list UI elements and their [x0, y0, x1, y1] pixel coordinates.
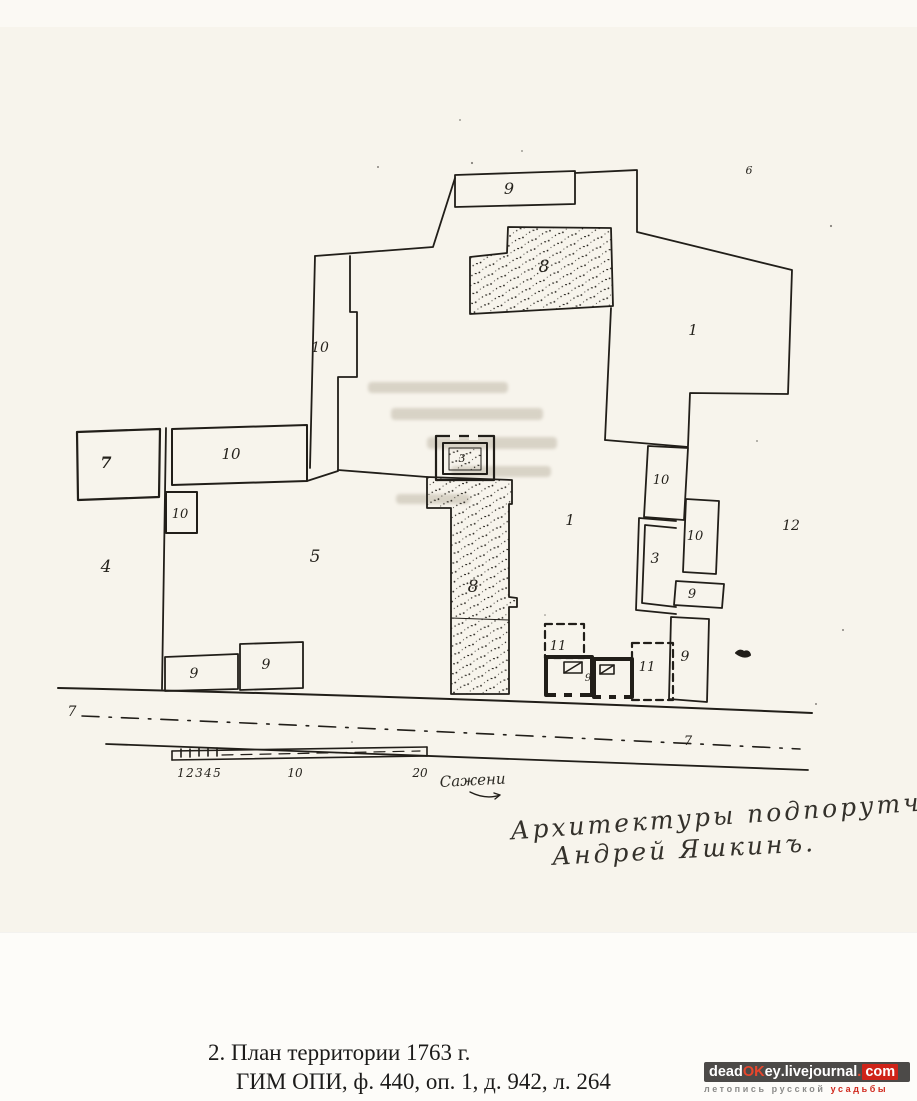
stove-hatched-right	[600, 665, 614, 674]
region-label-10: 10	[687, 529, 704, 544]
region-label-7: 7	[100, 453, 111, 472]
region-label-7: 7	[68, 704, 77, 720]
scale-tick-3: 3	[195, 766, 203, 780]
region-label-6: 6	[746, 164, 753, 177]
scale-arrow	[470, 792, 500, 799]
building-7-left	[77, 429, 160, 500]
figure-caption-line1: 2. План территории 1763 г.	[208, 1040, 470, 1066]
scale-tick-2: 2	[185, 766, 194, 780]
region-label-11: 11	[639, 660, 656, 675]
figure-caption-line2: ГИМ ОПИ, ф. 440, оп. 1, д. 942, л. 264	[236, 1069, 611, 1095]
region-label-9: 9	[190, 666, 199, 682]
watermark-site-dot: .	[857, 1064, 861, 1080]
region-label-11: 11	[550, 639, 567, 654]
region-label-10: 10	[221, 445, 241, 463]
scale-tick-4: 4	[203, 766, 212, 780]
watermark-site-mid: .livejournal	[781, 1064, 858, 1080]
region-label-9: 9	[688, 587, 696, 602]
region-label-1: 1	[688, 321, 698, 339]
scale-tick-labels: 123451020	[177, 766, 428, 780]
building-9-top	[455, 171, 575, 207]
region-label-3: 3	[459, 452, 466, 465]
watermark-site-ok: OK	[743, 1064, 765, 1080]
watermark-tagline-red: усадьбы	[831, 1084, 889, 1094]
scale-unit-label: Сажени	[439, 770, 506, 791]
region-label-9: 9	[681, 649, 690, 665]
region-label-9: 9	[504, 179, 514, 198]
scale-tick-5: 5	[213, 766, 221, 780]
scale-tick-1: 1	[177, 766, 185, 780]
watermark-site-com: com	[862, 1064, 898, 1080]
watermark-tagline-gray: летопись русской	[704, 1084, 825, 1094]
stove-hatched-left	[564, 662, 582, 673]
region-label-10: 10	[311, 340, 329, 356]
watermark-site: deadOKey.livejournal.com	[704, 1062, 910, 1082]
watermark-site-ey: ey	[765, 1064, 781, 1080]
region-label-10: 10	[172, 507, 189, 522]
region-label-10: 10	[653, 473, 670, 488]
scale-tick-20: 20	[411, 766, 428, 780]
region-label-9: 9	[585, 673, 592, 684]
building-9-bottom-left-a	[165, 654, 238, 691]
watermark-tagline: летопись русской усадьбы	[704, 1084, 910, 1094]
region-number-labels: 9861101010745381103109912111199977	[68, 164, 800, 749]
ink-scribble-mark	[736, 651, 750, 657]
building-9-right-small	[674, 581, 724, 608]
region-label-8: 8	[468, 577, 479, 597]
scan-specks	[351, 119, 844, 743]
region-label-5: 5	[310, 547, 321, 567]
region-label-7: 7	[684, 734, 693, 749]
region-label-1: 1	[565, 511, 575, 529]
region-label-12: 12	[782, 518, 800, 534]
watermark-site-dead: dead	[709, 1064, 743, 1080]
building-9-bottom-left-b	[240, 642, 303, 690]
region-label-4: 4	[100, 557, 112, 577]
plan-scan-svg: Сажени 123451020 98611010107453811031099…	[0, 0, 917, 935]
region-label-8: 8	[539, 257, 550, 277]
street-centerline	[82, 716, 800, 749]
scale-tick-10: 10	[287, 766, 303, 780]
scanned-plan-page: { "page": { "scan_background": "#f7f4ec"…	[0, 0, 917, 1100]
street-lines	[58, 688, 812, 770]
region-label-9: 9	[262, 657, 271, 673]
region-label-3: 3	[651, 551, 660, 567]
livejournal-watermark: deadOKey.livejournal.com летопись русско…	[704, 1062, 910, 1094]
